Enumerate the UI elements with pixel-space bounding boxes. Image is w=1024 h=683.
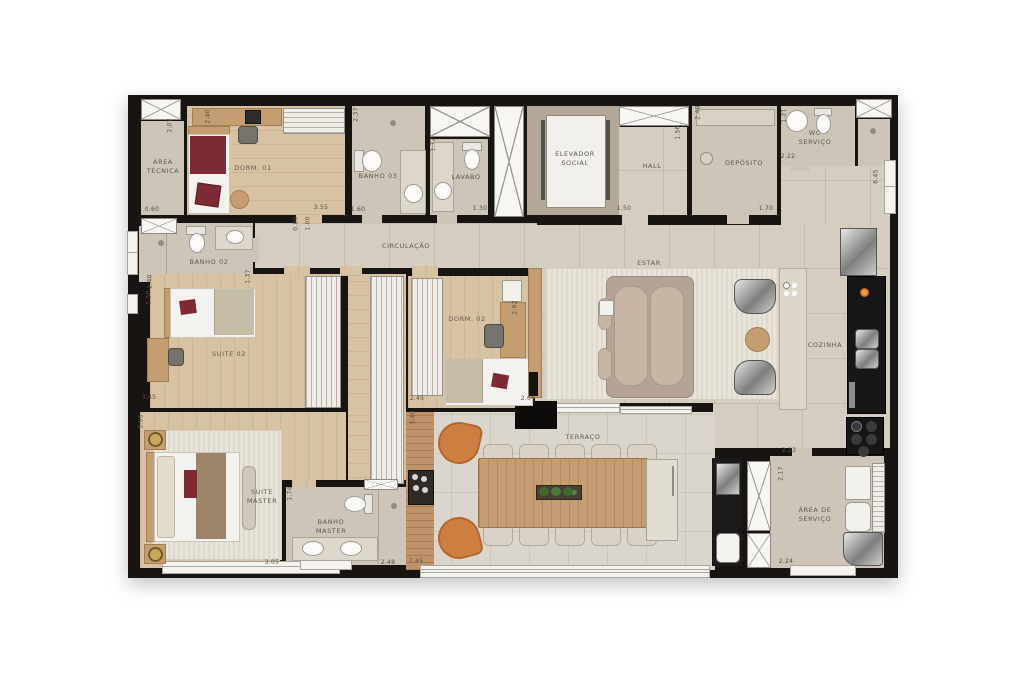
door-suite-to-banho-master [292, 480, 316, 487]
master-blanket-runner [196, 453, 226, 539]
dim-bmaster-h: 1.74 [287, 480, 294, 508]
label-deposito: DEPÓSITO [718, 159, 770, 168]
banho02-toilet-bowl [189, 233, 205, 253]
banho03-shower-head [390, 120, 396, 126]
master-lamp-1 [148, 432, 163, 447]
label-hall: HALL [636, 162, 668, 171]
floor-plan-canvas: ÁREA TÉCNICA DORM. 01 BANHO 03 LAVABO EL… [0, 0, 1024, 683]
label-dorm-02: DORM. 02 [442, 315, 492, 324]
dim-circ-door1: 0.80 [293, 210, 300, 238]
door-lavabo [437, 215, 457, 224]
dim-circ-door2: 1.00 [305, 210, 312, 238]
banho02-sink [226, 230, 244, 244]
dim-bmaster-w: 2.48 [376, 559, 400, 566]
sliding-door-estar-terraco-1 [552, 403, 620, 413]
label-circulacao: CIRCULAÇÃO [375, 242, 437, 251]
label-suite-master: SUITE MASTER [238, 488, 286, 506]
elevator-rail-right [606, 120, 610, 200]
dim-lavabo-w: 1.30 [468, 205, 492, 212]
dorm01-laptop [245, 110, 261, 124]
window-servico [790, 565, 856, 576]
dim-hall-h: 1.56 [675, 119, 682, 147]
dorm01-pouf [230, 190, 249, 209]
bmaster-sink-1 [302, 541, 324, 556]
banho03-sink [404, 184, 423, 203]
window-left-2 [127, 294, 138, 314]
terraco-grill-burners [412, 474, 418, 480]
sliding-door-estar-terraco-2 [620, 406, 692, 414]
suite02-blanket [214, 289, 254, 335]
shaft-area-tecnica-top [141, 99, 181, 120]
dim-smaster-h: 3.96 [138, 408, 145, 436]
suite02-desk [147, 338, 169, 382]
dorm02-chair [484, 324, 504, 348]
door-dorm02 [412, 266, 438, 278]
dim-deposito-h: 2.48 [695, 99, 702, 127]
suite02-wardrobe [305, 276, 341, 408]
label-dorm-01: DORM. 01 [228, 164, 278, 173]
servico-shaft-2 [747, 533, 771, 568]
bmaster-sink-2 [340, 541, 362, 556]
kitchen-cooktop-burners [851, 421, 862, 432]
dorm02-blanket [446, 359, 483, 403]
door-deposito [727, 215, 749, 224]
dim-banho02-r: 1.37 [245, 263, 252, 291]
lavabo-toilet-bowl [464, 149, 480, 170]
dim-lavabo-h: 1.72 [430, 131, 437, 159]
label-area-servico: ÁREA DE SERVIÇO [788, 506, 842, 524]
kitchen-island-burners [783, 282, 790, 289]
estar-tv [529, 372, 538, 396]
kitchen-island [779, 268, 807, 410]
shaft-banho02-top [141, 218, 177, 234]
dorm01-wardrobe [283, 108, 345, 134]
shaft-elevator-left [494, 106, 524, 217]
servico-shaft-1 [747, 461, 771, 531]
dorm02-pillow [491, 373, 509, 390]
bmaster-shower-head [391, 503, 397, 509]
dim-serv-top: 2.23 [777, 447, 801, 454]
door-banho03 [362, 215, 382, 224]
dim-smaster-w: 3.05 [260, 559, 284, 566]
dorm01-pillow [195, 182, 222, 207]
servico-cabinet-panel [716, 463, 740, 495]
dim-terr-w: 7.45 [404, 558, 428, 565]
door-wc-servico [790, 164, 810, 171]
estar-round-table [745, 327, 770, 352]
dim-terr-door: 2.04 [516, 395, 540, 402]
dim-suite02-h: 2.50 [146, 284, 153, 312]
dim-banho03-w: 1.60 [346, 206, 370, 213]
servico-washer-top [845, 466, 871, 500]
dim-wc-w: 2.22 [776, 153, 800, 160]
dim-hall-w: 1.50 [612, 205, 636, 212]
terraco-planter-greens [539, 487, 549, 496]
kitchen-flower-deco [860, 288, 869, 297]
master-cushion [184, 470, 197, 498]
banho03-vanity [400, 150, 426, 214]
window-right-wc [884, 160, 896, 214]
label-banho-02: BANHO 02 [188, 258, 230, 267]
label-lavabo: LAVABO [444, 173, 488, 182]
servico-shelf-strip [872, 463, 885, 533]
dim-right-h: 6.45 [873, 163, 880, 191]
label-wc-servico: WC SERVIÇO [794, 129, 836, 147]
servico-dryer-dark [843, 532, 883, 566]
master-closet-wardrobe [370, 276, 404, 484]
kitchen-fridge [840, 228, 877, 276]
deposito-stool [700, 152, 713, 165]
window-left-1 [127, 231, 138, 275]
estar-armchair-2 [734, 360, 776, 395]
estar-side-table [599, 300, 614, 316]
dim-area-tecnica-h: 2.07 [167, 112, 174, 140]
banho02-shower-head [158, 240, 164, 246]
door-closet-corridor [340, 266, 362, 276]
dim-deposito-w: 1.70 [754, 205, 778, 212]
estar-sofa-cushion-right [650, 286, 684, 386]
terraco-sideboard-handle [672, 466, 674, 496]
dim-banho03-h: 2.37 [353, 101, 360, 129]
servico-washer-bottom [845, 502, 871, 532]
door-hall-estar [622, 215, 648, 226]
suite02-chair [168, 348, 184, 366]
wc-shower-head [870, 128, 876, 134]
kitchen-sink-basin-1 [855, 329, 879, 349]
dim-terr-h: 3.40 [410, 404, 417, 432]
suite02-pillow [179, 299, 197, 315]
master-pillows [157, 456, 175, 538]
estar-sofa-cushion-left [614, 286, 648, 386]
dim-dorm01-h: 2.40 [205, 103, 212, 131]
wc-shower-stall [858, 119, 890, 166]
dim-dorm02-w: 2.45 [405, 395, 429, 402]
deposito-shelf [696, 109, 775, 126]
bmaster-toilet-bowl [344, 496, 366, 512]
label-estar: ESTAR [631, 259, 667, 268]
dorm01-blanket [190, 136, 226, 174]
dorm02-wardrobe [411, 278, 443, 396]
estar-sofa-arm-2 [598, 348, 612, 380]
label-cozinha: COZINHA [804, 341, 846, 350]
shaft-top-right [856, 99, 892, 118]
dim-serv-h: 2.17 [778, 460, 785, 488]
banho03-toilet-bowl [362, 150, 382, 172]
label-banho-master: BANHO MASTER [305, 518, 357, 536]
lavabo-sink [434, 182, 452, 200]
dim-dorm01-w: 3.55 [308, 204, 334, 211]
label-terraco: TERRAÇO [558, 433, 608, 442]
bmaster-niche [364, 479, 398, 490]
label-elevador: ELEVADOR SOCIAL [545, 150, 605, 168]
dim-wc-h: 1.21 [781, 102, 788, 130]
door-suite02 [284, 266, 310, 276]
label-area-tecnica: ÁREA TÉCNICA [142, 158, 184, 176]
label-banho-03: BANHO 03 [358, 172, 398, 181]
label-suite-02: SUITE 02 [208, 350, 250, 359]
servico-laundry-tub [716, 533, 740, 563]
master-lamp-2 [148, 547, 163, 562]
dim-dorm02-h: 2.92 [512, 294, 519, 322]
dim-serv-w: 2.24 [774, 558, 798, 565]
dim-suite02-w: 3.45 [137, 394, 161, 401]
shaft-lavabo-top [430, 106, 490, 137]
kitchen-sink-basin-2 [855, 349, 879, 369]
dim-area-tecnica-w: 0.60 [140, 206, 164, 213]
kitchen-cabinet-handle [849, 382, 855, 408]
estar-armchair-1 [734, 279, 776, 314]
window-terraco [420, 565, 710, 578]
banho-master-shower [378, 489, 409, 563]
dorm01-desk-chair [238, 126, 258, 144]
